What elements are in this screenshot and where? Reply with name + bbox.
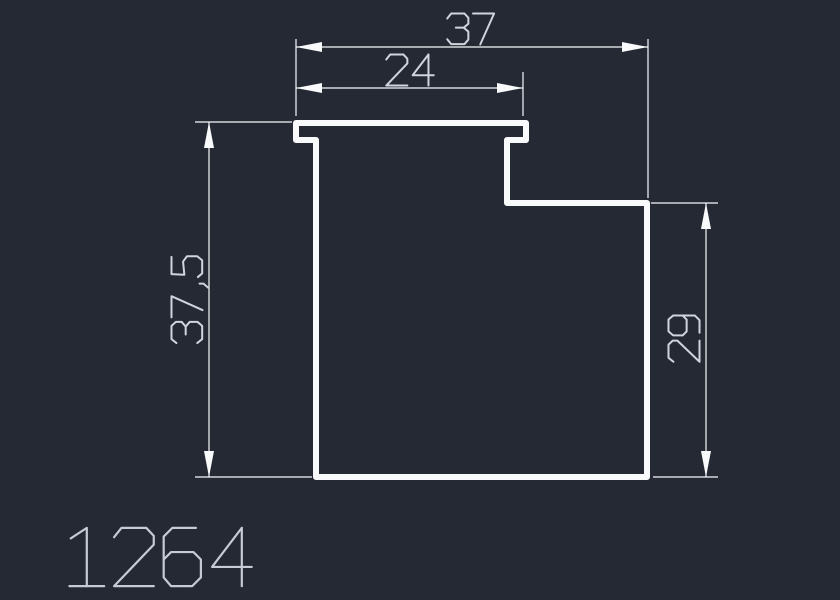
dim-overall-width-label xyxy=(447,13,494,44)
arrowhead xyxy=(296,83,322,93)
dim-right-height xyxy=(651,203,718,477)
arrowhead xyxy=(296,42,322,52)
dim-top-flange-width-label xyxy=(386,54,434,85)
dim-top-flange-width xyxy=(296,54,523,116)
dim-overall-height xyxy=(171,122,312,477)
arrowhead xyxy=(204,451,214,477)
arrowhead xyxy=(622,42,648,52)
drawing-canvas xyxy=(0,0,840,600)
profile-outline xyxy=(296,123,647,477)
arrowhead xyxy=(701,203,711,229)
arrowhead xyxy=(204,122,214,148)
arrowhead xyxy=(701,451,711,477)
dim-overall-width xyxy=(296,13,648,198)
dim-overall-height-label xyxy=(171,256,208,343)
dim-right-height-label xyxy=(668,316,699,362)
part-number xyxy=(69,528,251,586)
arrowhead xyxy=(497,83,523,93)
technical-drawing xyxy=(0,0,840,600)
